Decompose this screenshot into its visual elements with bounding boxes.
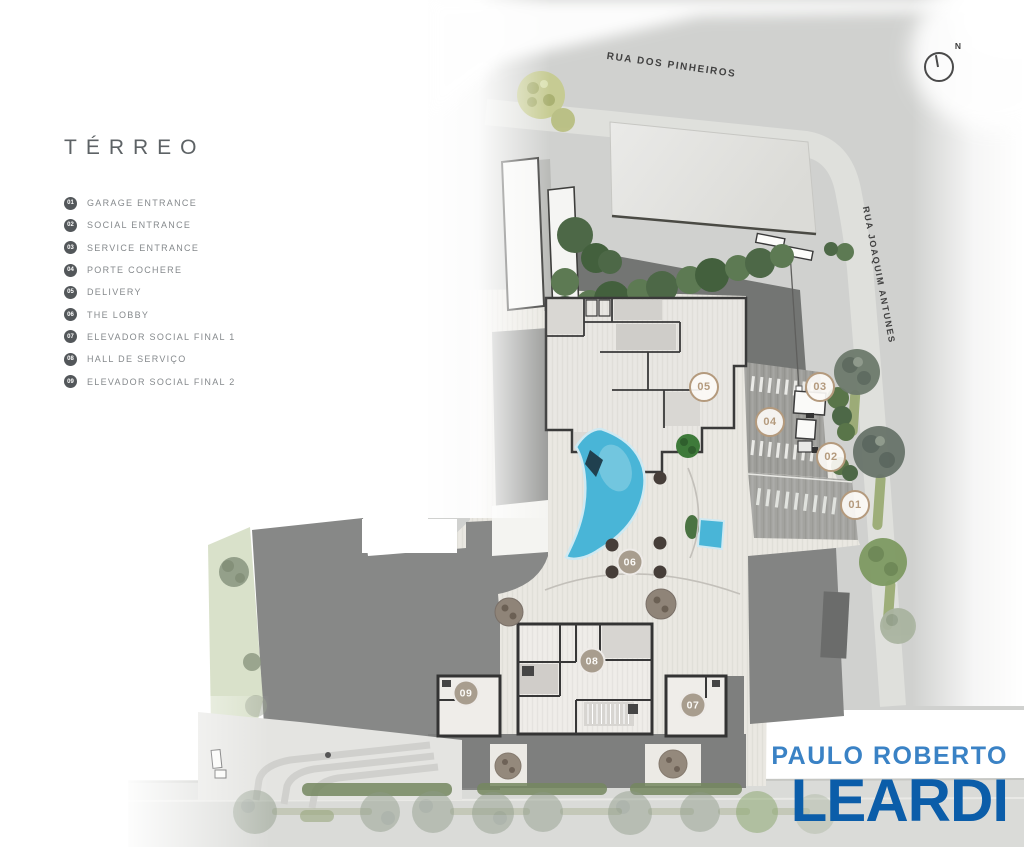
- legend-item-number: 08: [64, 353, 77, 366]
- legend-item-09: 09ELEVADOR SOCIAL FINAL 2: [64, 370, 236, 392]
- legend-item-number: 01: [64, 197, 77, 210]
- plan-marker-07: 07: [680, 692, 707, 719]
- plan-marker-05: 05: [689, 372, 719, 402]
- compass-needle: [935, 55, 939, 67]
- legend-item-number: 02: [64, 219, 77, 232]
- plan-marker-03: 03: [805, 372, 835, 402]
- legend-item-label: THE LOBBY: [87, 310, 149, 320]
- legend-item-number: 03: [64, 241, 77, 254]
- legend-item-label: DELIVERY: [87, 287, 142, 297]
- plan-marker-02: 02: [816, 442, 846, 472]
- brand-name-main: LEARDI: [771, 771, 1008, 831]
- legend-item-label: ELEVADOR SOCIAL FINAL 1: [87, 332, 236, 342]
- legend-item-label: GARAGE ENTRANCE: [87, 198, 197, 208]
- legend-item-number: 05: [64, 286, 77, 299]
- brand-logo: PAULO ROBERTO LEARDI: [771, 744, 1008, 831]
- legend-item-08: 08HALL DE SERVIÇO: [64, 348, 236, 370]
- floor-title: TÉRREO: [64, 136, 236, 160]
- legend-item-number: 09: [64, 375, 77, 388]
- legend-item-label: ELEVADOR SOCIAL FINAL 2: [87, 377, 236, 387]
- legend-item-label: HALL DE SERVIÇO: [87, 354, 187, 364]
- legend-item-number: 07: [64, 330, 77, 343]
- compass-north-icon: N: [924, 52, 954, 82]
- legend-item-label: SOCIAL ENTRANCE: [87, 220, 191, 230]
- plan-marker-04: 04: [755, 407, 785, 437]
- brand-name-top: PAULO ROBERTO: [771, 744, 1008, 769]
- legend-item-number: 04: [64, 264, 77, 277]
- legend-list: 01GARAGE ENTRANCE02SOCIAL ENTRANCE03SERV…: [64, 192, 236, 393]
- legend-item-01: 01GARAGE ENTRANCE: [64, 192, 236, 214]
- legend-item-label: SERVICE ENTRANCE: [87, 243, 199, 253]
- legend-item-number: 06: [64, 308, 77, 321]
- legend-item-07: 07ELEVADOR SOCIAL FINAL 1: [64, 326, 236, 348]
- legend-item-02: 02SOCIAL ENTRANCE: [64, 214, 236, 236]
- plan-marker-08: 08: [579, 648, 606, 675]
- legend-item-03: 03SERVICE ENTRANCE: [64, 237, 236, 259]
- legend: TÉRREO 01GARAGE ENTRANCE02SOCIAL ENTRANC…: [64, 136, 236, 393]
- floorplan-page: TÉRREO 01GARAGE ENTRANCE02SOCIAL ENTRANC…: [0, 0, 1024, 847]
- plan-marker-06: 06: [617, 549, 644, 576]
- legend-item-label: PORTE COCHERE: [87, 265, 182, 275]
- legend-item-06: 06THE LOBBY: [64, 303, 236, 325]
- legend-item-04: 04PORTE COCHERE: [64, 259, 236, 281]
- plan-marker-09: 09: [453, 680, 480, 707]
- compass-north-label: N: [955, 41, 961, 51]
- plan-marker-01: 01: [840, 490, 870, 520]
- site-plan-illustration: [0, 0, 1024, 847]
- legend-item-05: 05DELIVERY: [64, 281, 236, 303]
